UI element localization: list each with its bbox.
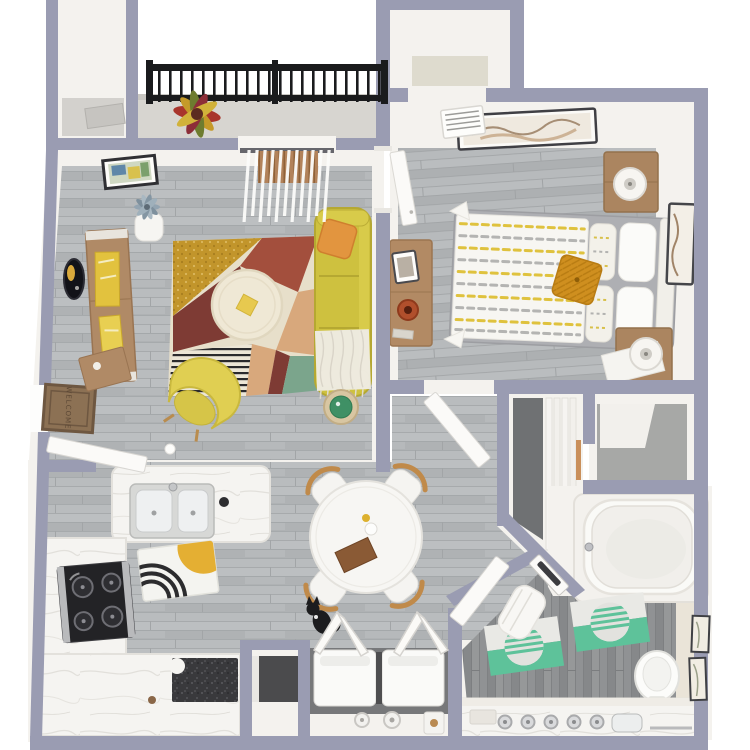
white-pillow (618, 223, 656, 283)
vanity-counter (452, 698, 700, 738)
framed-wall-art (103, 155, 158, 188)
tray (470, 710, 496, 724)
welcome-mat-text: WELCOME (63, 386, 72, 429)
framed-art-right-wall (667, 204, 696, 285)
floor-plan-screenshot: WELCOME (0, 0, 750, 750)
hvac-vent-icon (440, 106, 485, 139)
bathtub (574, 494, 708, 602)
teal-bath-mat-2 (570, 592, 650, 652)
entry-closet-doorway (412, 56, 488, 86)
round-coffee-table (212, 270, 282, 340)
vanity-sink (612, 714, 642, 732)
knit-throw (315, 329, 371, 399)
round-white-table (310, 481, 422, 593)
faucet (169, 483, 177, 491)
welcome-mat: WELCOME (43, 384, 96, 432)
mustard-sofa (315, 208, 371, 399)
floor-plan-svg: WELCOME (0, 0, 750, 750)
oval-wall-decor (64, 259, 84, 299)
rattan-side-table (324, 390, 358, 424)
dresser (390, 240, 432, 346)
black-cooktop-range (57, 561, 135, 643)
tub-faucet (585, 543, 593, 551)
sink-accessory (219, 497, 229, 507)
floor-lamp-head (165, 444, 175, 454)
nightstand-top (604, 152, 658, 212)
double-basin-sink (130, 483, 214, 538)
